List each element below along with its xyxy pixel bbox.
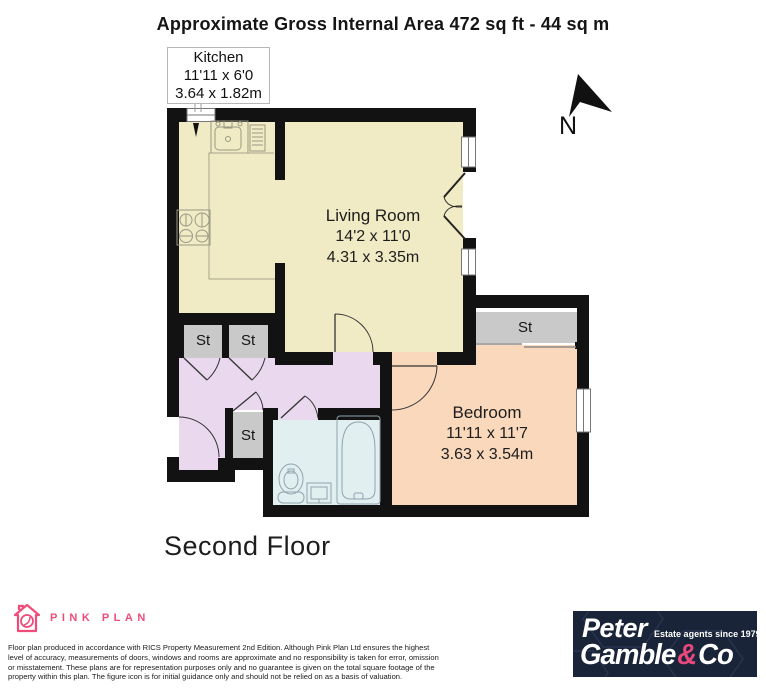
disclaimer-line: or misstatement. These plans are for rep… bbox=[8, 663, 468, 673]
kitchen-dims-metric: 3.64 x 1.82m bbox=[168, 85, 269, 103]
plan-linework bbox=[0, 0, 766, 694]
agent-logo-bottom-row: Gamble&Co bbox=[580, 639, 733, 672]
bathroom-sink-icon bbox=[307, 483, 331, 503]
bedroom-dims-metric: 3.63 x 3.54m bbox=[402, 444, 572, 465]
disclaimer-line: property within this plan. The figure ic… bbox=[8, 672, 468, 682]
agent-ampersand: & bbox=[675, 639, 698, 671]
kitchen-door-marker bbox=[193, 123, 199, 137]
agent-name-line3: Co bbox=[698, 639, 733, 671]
living-room-dims-imperial: 14'2 x 11'0 bbox=[288, 226, 458, 247]
north-label: N bbox=[559, 112, 577, 141]
stove-icon bbox=[177, 210, 210, 245]
storage-label: St bbox=[518, 319, 532, 336]
pink-plan-logo: PINK PLAN bbox=[13, 602, 150, 634]
living-room-name: Living Room bbox=[288, 205, 458, 226]
bedroom-name: Bedroom bbox=[402, 402, 572, 423]
window bbox=[187, 109, 591, 433]
floorplan-page: Approximate Gross Internal Area 472 sq f… bbox=[0, 0, 766, 694]
pink-plan-house-icon bbox=[13, 602, 41, 634]
bedroom-label: Bedroom 11'11 x 11'7 3.63 x 3.54m bbox=[402, 402, 572, 465]
kitchen-sink-icon bbox=[211, 121, 248, 153]
disclaimer-line: level of accuracy, measurements of doors… bbox=[8, 653, 468, 663]
storage-label: St bbox=[241, 332, 255, 349]
floor-label: Second Floor bbox=[164, 531, 331, 562]
toilet-icon bbox=[278, 464, 304, 503]
living-room-dims-metric: 4.31 x 3.35m bbox=[288, 247, 458, 268]
kitchen-counter-line bbox=[209, 153, 275, 279]
storage-label: St bbox=[241, 427, 255, 444]
agent-tagline: Estate agents since 1979 bbox=[654, 629, 757, 639]
agent-name-line2: Gamble bbox=[580, 639, 675, 671]
agent-logo: Peter Estate agents since 1979 Gamble&Co bbox=[573, 611, 757, 677]
kitchen-label-box: Kitchen 11'11 x 6'0 3.64 x 1.82m bbox=[167, 47, 270, 104]
disclaimer-text: Floor plan produced in accordance with R… bbox=[8, 643, 468, 682]
bathtub-icon bbox=[337, 416, 380, 504]
kitchen-dims-imperial: 11'11 x 6'0 bbox=[168, 67, 269, 85]
living-room-label: Living Room 14'2 x 11'0 4.31 x 3.35m bbox=[288, 205, 458, 268]
storage-label: St bbox=[196, 332, 210, 349]
pink-plan-brand: PINK PLAN bbox=[50, 612, 150, 624]
storage-sliding-door bbox=[476, 344, 576, 347]
door-swing bbox=[179, 314, 437, 457]
north-arrow-icon bbox=[569, 74, 612, 117]
kitchen-name: Kitchen bbox=[168, 49, 269, 67]
bedroom-dims-imperial: 11'11 x 11'7 bbox=[402, 423, 572, 444]
kitchen-drainer-icon bbox=[250, 125, 265, 151]
disclaimer-line: Floor plan produced in accordance with R… bbox=[8, 643, 468, 653]
